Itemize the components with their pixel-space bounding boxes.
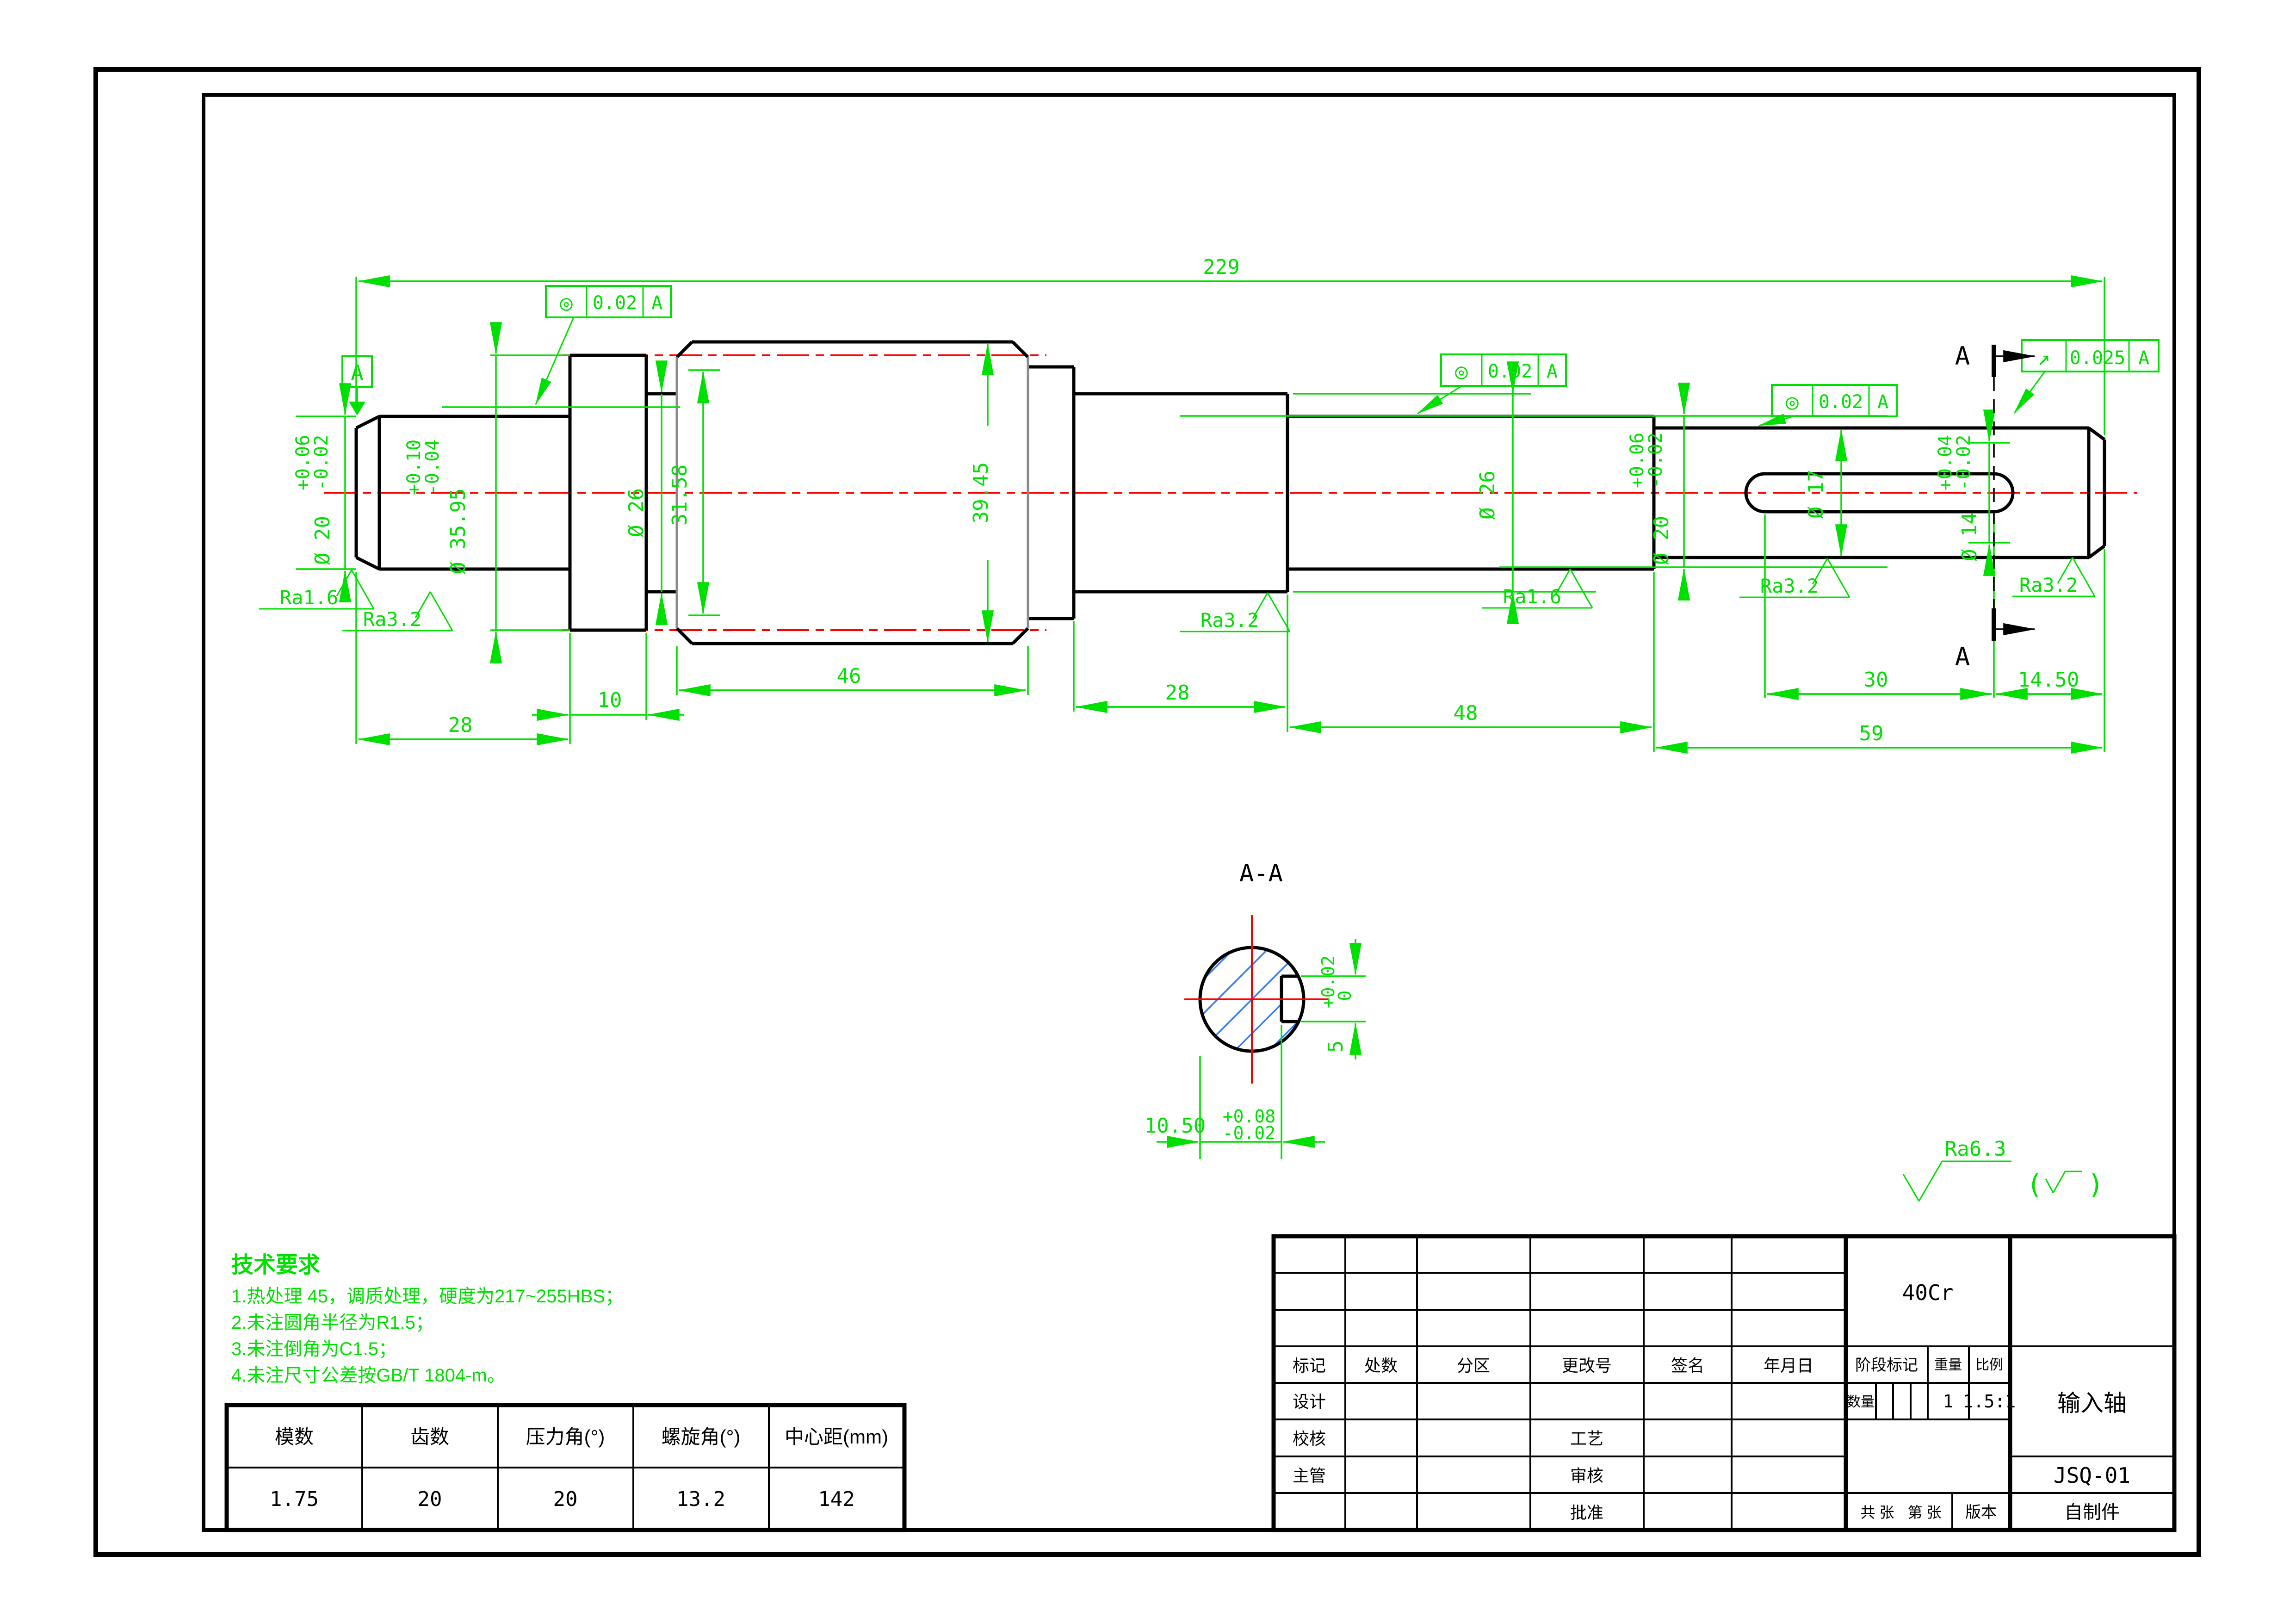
tb-part-name: 输入轴 bbox=[2057, 1390, 2127, 1416]
tb-scale-value: 1.5:1 bbox=[1963, 1391, 2016, 1412]
tech-req-item: 3.未注倒角为C1.5； bbox=[231, 1339, 397, 1359]
datum-triangle bbox=[349, 402, 365, 415]
tb-source: 自制件 bbox=[2064, 1502, 2120, 1523]
tb-label-weight: 重量 bbox=[1934, 1357, 1962, 1373]
dim-seg-28-mid: 28 bbox=[1076, 681, 1285, 707]
dim-48: 48 bbox=[1454, 701, 1478, 725]
concentricity-icon: ◎ bbox=[560, 290, 573, 315]
tolerance-frame-1: ◎ 0.02 A bbox=[442, 286, 680, 407]
technical-requirements: 技术要求 1.热处理 45，调质处理，硬度为217~255HBS； 2.未注圆角… bbox=[231, 1253, 624, 1386]
section-cut-marks: A A bbox=[1955, 341, 2035, 671]
cut-label-bottom: A bbox=[1955, 642, 1970, 671]
drawing-sheet: A ◎ 0.02 A ◎ 0.02 A ◎ 0.02 A ↗ 0.025 bbox=[0, 0, 2296, 1623]
tech-req-item: 4.未注尺寸公差按GB/T 1804-m。 bbox=[231, 1365, 506, 1386]
tolerance-frame-3: ◎ 0.02 A bbox=[1759, 385, 1897, 426]
inner-border bbox=[204, 95, 2174, 1530]
tol-minus: -0.02 bbox=[1953, 435, 1974, 490]
engineering-drawing: A ◎ 0.02 A ◎ 0.02 A ◎ 0.02 A ↗ 0.025 bbox=[0, 0, 2296, 1623]
dim-seg-48: 48 bbox=[1290, 701, 1652, 727]
tb-label-audit: 审核 bbox=[1570, 1466, 1603, 1485]
tol-minus: -0.02 bbox=[1645, 433, 1666, 488]
tb-label-zone: 分区 bbox=[1457, 1356, 1490, 1375]
tb-label-quantity: 数量 bbox=[1847, 1394, 1875, 1410]
table-header: 中心距(mm) bbox=[785, 1426, 888, 1448]
dim-gear-od-39-45: 39.45 bbox=[969, 344, 993, 642]
table-header: 螺旋角(°) bbox=[662, 1426, 741, 1448]
dim-28: 28 bbox=[1165, 681, 1190, 705]
paren-close: ) bbox=[2088, 1169, 2104, 1200]
tb-label-count: 处数 bbox=[1364, 1356, 1398, 1375]
tb-material: 40Cr bbox=[1902, 1280, 1954, 1305]
tolerance-datum: A bbox=[2138, 347, 2149, 369]
concentricity-icon: ◎ bbox=[1455, 359, 1468, 384]
tb-drawing-no: JSQ-01 bbox=[2054, 1463, 2130, 1488]
tolerance-value: 0.02 bbox=[1819, 391, 1863, 413]
table-value: 142 bbox=[818, 1487, 854, 1511]
tol-minus: -0.02 bbox=[1223, 1123, 1275, 1143]
tb-label-date: 年月日 bbox=[1764, 1356, 1813, 1375]
tol-minus: 0 bbox=[1335, 991, 1355, 1001]
tb-weight-value: 1 bbox=[1943, 1391, 1954, 1412]
tech-req-item: 2.未注圆角半径为R1.5； bbox=[231, 1313, 434, 1333]
tolerance-datum: A bbox=[651, 292, 662, 314]
tb-label-stage: 阶段标记 bbox=[1855, 1357, 1918, 1374]
center-lines bbox=[324, 355, 2137, 630]
dim-59: 59 bbox=[1859, 722, 1884, 745]
tech-req-title: 技术要求 bbox=[231, 1253, 320, 1277]
dim-keyway-30: 30 bbox=[1767, 668, 1992, 694]
svg-text:Ra1.6: Ra1.6 bbox=[280, 586, 338, 609]
svg-text:Ra3.2: Ra3.2 bbox=[363, 608, 421, 631]
table-header: 模数 bbox=[275, 1426, 314, 1448]
dia-label: Ø 26 bbox=[625, 488, 648, 537]
dim-39-45: 39.45 bbox=[969, 462, 993, 523]
dia-label: Ø 26 bbox=[1476, 471, 1499, 520]
dim-31-58: 31.58 bbox=[668, 465, 692, 526]
table-value: 1.75 bbox=[270, 1487, 319, 1511]
table-header: 齿数 bbox=[410, 1426, 449, 1448]
tech-req-item: 1.热处理 45，调质处理，硬度为217~255HBS； bbox=[231, 1286, 624, 1307]
tb-label-check: 校核 bbox=[1293, 1429, 1326, 1448]
dim-total-length: 229 bbox=[359, 255, 2102, 281]
table-value: 20 bbox=[418, 1487, 442, 1511]
section-title: A-A bbox=[1239, 860, 1283, 887]
dim-5: 5 bbox=[1324, 1041, 1348, 1053]
runout-icon: ↗ bbox=[2037, 345, 2050, 370]
table-value: 13.2 bbox=[676, 1487, 725, 1511]
tb-label-scale: 比例 bbox=[1975, 1357, 2003, 1373]
tb-label-mark: 标记 bbox=[1293, 1356, 1326, 1375]
tb-label-chief: 主管 bbox=[1293, 1466, 1326, 1485]
roughness-ra32-end: Ra3.2 bbox=[2012, 558, 2095, 596]
roughness-ra16-journal: Ra1.6 bbox=[1482, 569, 1592, 608]
dia-label: Ø 35.95 bbox=[446, 488, 470, 574]
svg-text:Ra3.2: Ra3.2 bbox=[2019, 574, 2078, 596]
svg-text:Ra3.2: Ra3.2 bbox=[1760, 575, 1819, 597]
roughness-ra32-keyway: Ra3.2 bbox=[1739, 558, 1850, 597]
dim-229: 229 bbox=[1203, 255, 1239, 279]
table-header: 压力角(°) bbox=[526, 1426, 605, 1448]
section-view-a-a: A-A +0.02 0 5 10.50 + bbox=[1103, 850, 1401, 1159]
dim-keyway-14-50: 14.50 bbox=[1996, 668, 2102, 694]
dia-label: Ø 20 bbox=[311, 516, 334, 565]
tb-label-version: 版本 bbox=[1965, 1504, 1997, 1521]
concentricity-icon: ◎ bbox=[1786, 389, 1799, 414]
table-value: 20 bbox=[553, 1487, 578, 1511]
dia-label: Ø 14 bbox=[1958, 512, 1981, 561]
dim-seg-10: 10 bbox=[532, 688, 684, 715]
tb-label-sheets: 共 张 bbox=[1861, 1504, 1894, 1521]
cut-label-top: A bbox=[1955, 341, 1970, 371]
dim-28: 28 bbox=[448, 713, 473, 737]
tolerance-value: 0.02 bbox=[593, 292, 637, 314]
tb-label-sheet-no: 第 张 bbox=[1908, 1504, 1942, 1521]
tolerance-datum: A bbox=[1547, 361, 1558, 382]
tb-label-design: 设计 bbox=[1293, 1392, 1326, 1411]
roughness-general: Ra6.3 ( ) bbox=[1903, 1137, 2104, 1201]
tb-label-process: 工艺 bbox=[1570, 1429, 1603, 1448]
tolerance-frame-4: ↗ 0.025 A bbox=[2014, 340, 2159, 413]
datum-a-label: A bbox=[351, 360, 364, 385]
tb-label-approve: 批准 bbox=[1570, 1503, 1603, 1522]
tolerance-value: 0.025 bbox=[2070, 347, 2125, 369]
tol-minus: -0.04 bbox=[422, 440, 443, 495]
dim-10: 10 bbox=[598, 688, 622, 712]
svg-text:Ra1.6: Ra1.6 bbox=[1503, 585, 1561, 608]
title-block: 标记 处数 分区 更改号 签名 年月日 设计 校核 主管 工艺 审核 批准 40… bbox=[1274, 1236, 2174, 1530]
tb-label-signature: 签名 bbox=[1671, 1356, 1704, 1375]
dim-root-31-58: 31.58 bbox=[668, 372, 703, 613]
tolerance-value: 0.02 bbox=[1488, 361, 1532, 382]
roughness-marks: Ra1.6 Ra3.2 Ra3.2 Ra1.6 Ra3.2 Ra3.2 bbox=[259, 558, 2104, 1201]
tol-minus: -0.02 bbox=[311, 435, 332, 490]
paren-open: ( bbox=[2027, 1169, 2043, 1200]
tolerance-datum: A bbox=[1877, 391, 1888, 413]
dim-46: 46 bbox=[837, 664, 861, 688]
dim-gear-46: 46 bbox=[679, 664, 1026, 690]
tolerance-frame-2: ◎ 0.02 A bbox=[1417, 354, 1566, 414]
dim-30: 30 bbox=[1864, 668, 1888, 692]
dia-label: Ø 20 bbox=[1650, 516, 1673, 565]
tb-label-change-no: 更改号 bbox=[1562, 1356, 1612, 1375]
roughness-ra32-mid: Ra3.2 bbox=[1180, 593, 1290, 632]
dim-seg-28-left: 28 bbox=[359, 713, 568, 739]
gear-parameter-table: 模数 齿数 压力角(°) 螺旋角(°) 中心距(mm) 1.75 20 20 1… bbox=[227, 1405, 904, 1530]
dim-10-50: 10.50 bbox=[1145, 1114, 1206, 1138]
roughness-ra32-b: Ra3.2 bbox=[342, 592, 452, 631]
extension-lines bbox=[356, 277, 2104, 752]
dim-14-50: 14.50 bbox=[2018, 668, 2079, 692]
svg-text:Ra6.3: Ra6.3 bbox=[1945, 1137, 2006, 1161]
dia-label: Ø 17 bbox=[1804, 470, 1828, 519]
svg-text:Ra3.2: Ra3.2 bbox=[1201, 609, 1259, 632]
dim-seg-59: 59 bbox=[1656, 722, 2102, 748]
